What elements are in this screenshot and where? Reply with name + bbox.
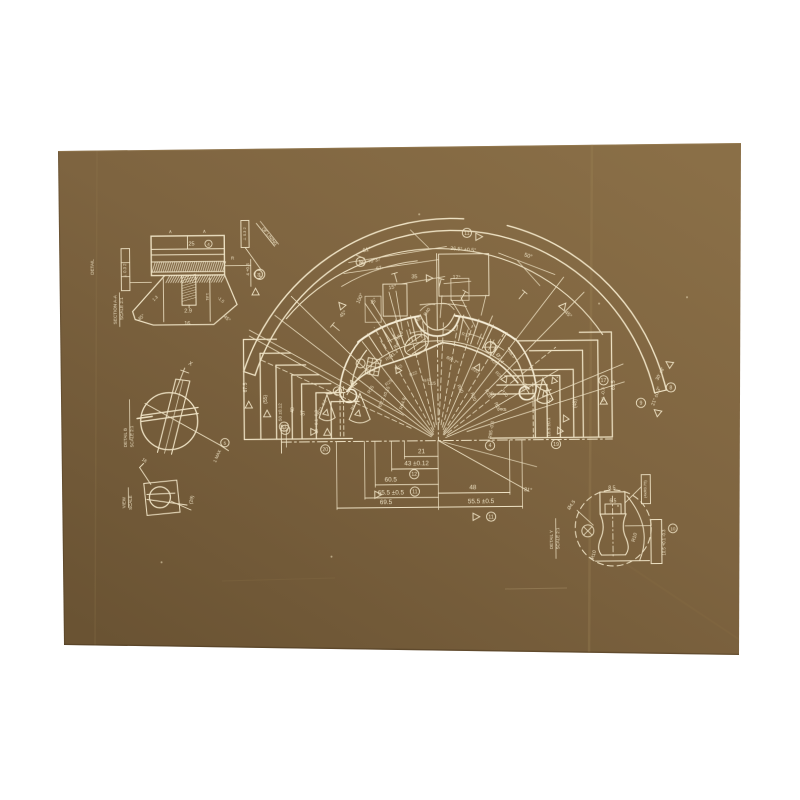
svg-text:∧: ∧ bbox=[169, 229, 173, 235]
svg-text:8: 8 bbox=[669, 385, 672, 391]
svg-text:4: 4 bbox=[489, 443, 492, 449]
svg-text:35: 35 bbox=[411, 274, 417, 280]
svg-text:25: 25 bbox=[188, 241, 194, 247]
svg-text:6.5: 6.5 bbox=[609, 498, 616, 504]
svg-text:20: 20 bbox=[322, 447, 328, 453]
svg-text:65.5 ±0.5: 65.5 ±0.5 bbox=[378, 489, 405, 496]
svg-text:55.5 ±0.5: 55.5 ±0.5 bbox=[468, 498, 495, 505]
svg-text:SECTION A-A: SECTION A-A bbox=[112, 294, 117, 324]
svg-text:48: 48 bbox=[469, 484, 477, 491]
svg-text:1.81: 1.81 bbox=[205, 293, 210, 302]
svg-text:19: 19 bbox=[553, 442, 559, 448]
svg-text:⊥ 0.3 2: ⊥ 0.3 2 bbox=[122, 263, 127, 278]
svg-text:R: R bbox=[231, 256, 234, 261]
svg-text:16: 16 bbox=[184, 321, 190, 327]
svg-text:15°: 15° bbox=[388, 284, 397, 291]
svg-text:65.5: 65.5 bbox=[611, 380, 617, 390]
svg-text:L15: L15 bbox=[428, 381, 436, 387]
svg-text:37: 37 bbox=[301, 410, 307, 416]
svg-text:17°: 17° bbox=[452, 275, 460, 282]
svg-text:⊥ 0.3 2: ⊥ 0.3 2 bbox=[242, 226, 247, 240]
svg-text:21°: 21° bbox=[523, 487, 532, 494]
svg-text:5: 5 bbox=[224, 440, 227, 446]
svg-text:1: 1 bbox=[258, 273, 261, 279]
svg-text:DETAIL B: DETAIL B bbox=[123, 428, 128, 447]
svg-text:40: 40 bbox=[290, 407, 296, 413]
svg-text:R8: R8 bbox=[438, 341, 444, 346]
svg-text:(48): (48) bbox=[572, 399, 578, 408]
svg-text:DETAIL: DETAIL bbox=[90, 259, 95, 275]
svg-text:30 +0.1 -0.3: 30 +0.1 -0.3 bbox=[314, 409, 319, 433]
svg-text:10: 10 bbox=[670, 526, 675, 531]
svg-text:67.5: 67.5 bbox=[243, 382, 249, 392]
svg-text:21: 21 bbox=[418, 448, 426, 455]
svg-text:2.9: 2.9 bbox=[184, 308, 192, 314]
svg-text:12: 12 bbox=[411, 472, 417, 478]
svg-text:(55): (55) bbox=[263, 394, 269, 403]
svg-text:(4xR0.75): (4xR0.75) bbox=[642, 480, 647, 498]
svg-text:DETAIL Y: DETAIL Y bbox=[549, 530, 554, 549]
svg-text:∧: ∧ bbox=[203, 229, 207, 235]
svg-text:11: 11 bbox=[412, 489, 418, 495]
svg-text:4 +0.3: 4 +0.3 bbox=[245, 263, 250, 276]
svg-text:11: 11 bbox=[464, 231, 470, 237]
svg-text:43 ±0.12: 43 ±0.12 bbox=[404, 460, 429, 467]
svg-text:10.5 +0.1 -0.3: 10.5 +0.1 -0.3 bbox=[661, 529, 666, 556]
svg-text:N: N bbox=[359, 260, 363, 266]
svg-text:18.5 ±0.1: 18.5 ±0.1 bbox=[546, 417, 551, 437]
svg-text:17: 17 bbox=[601, 378, 607, 384]
svg-text:60.5: 60.5 bbox=[385, 476, 398, 483]
svg-text:8.5: 8.5 bbox=[608, 485, 615, 491]
svg-text:50 ±0.12: 50 ±0.12 bbox=[278, 403, 283, 421]
svg-text:VIEW: VIEW bbox=[121, 496, 126, 508]
svg-text:69.5: 69.5 bbox=[380, 499, 393, 506]
svg-text:R5: R5 bbox=[500, 407, 507, 413]
svg-text:11: 11 bbox=[281, 424, 287, 430]
svg-text:11: 11 bbox=[488, 514, 494, 520]
svg-text:9: 9 bbox=[639, 401, 642, 407]
